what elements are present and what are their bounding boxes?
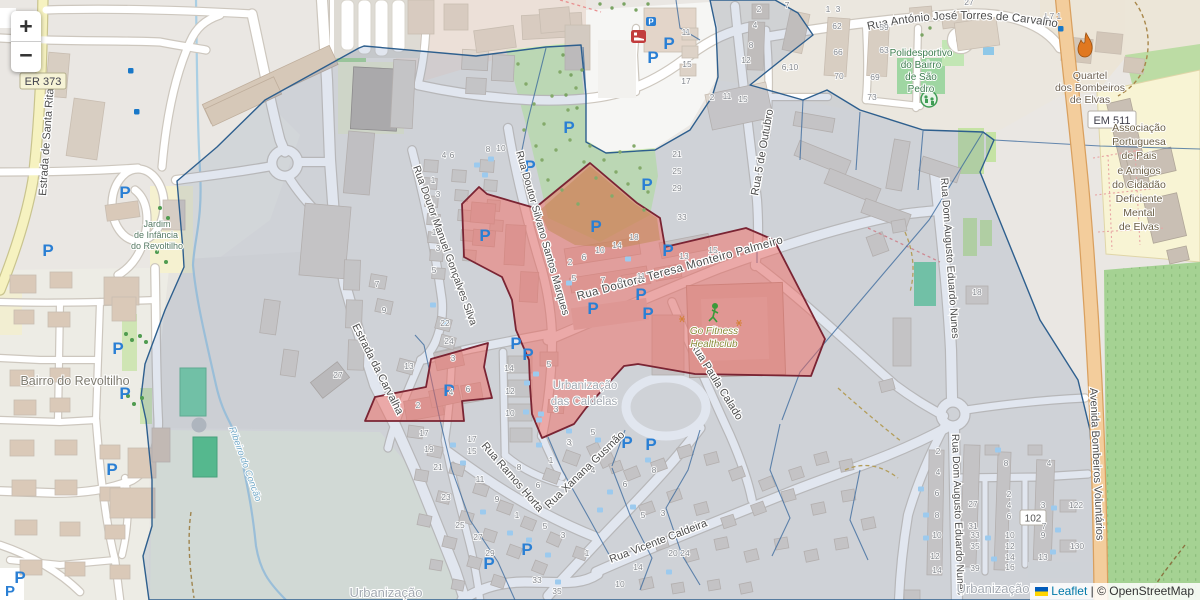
- svg-text:das Caldelas: das Caldelas: [551, 396, 618, 408]
- svg-text:70: 70: [834, 71, 844, 81]
- svg-text:39: 39: [970, 563, 980, 573]
- svg-text:de São: de São: [905, 72, 937, 83]
- svg-text:10: 10: [595, 245, 605, 255]
- svg-text:8: 8: [486, 144, 491, 154]
- svg-text:130: 130: [1070, 541, 1084, 551]
- svg-text:29: 29: [672, 183, 682, 193]
- svg-text:12: 12: [1005, 541, 1015, 551]
- svg-text:do Cidadão: do Cidadão: [1112, 179, 1166, 191]
- svg-text:6: 6: [935, 488, 940, 498]
- svg-text:8: 8: [652, 465, 657, 475]
- svg-text:7: 7: [375, 279, 380, 289]
- svg-text:3: 3: [554, 404, 559, 414]
- svg-text:5: 5: [543, 521, 548, 531]
- svg-text:9: 9: [1041, 530, 1046, 540]
- svg-text:8: 8: [749, 40, 754, 50]
- svg-text:14: 14: [633, 562, 643, 572]
- svg-text:ER 373: ER 373: [25, 76, 62, 88]
- svg-text:21: 21: [433, 462, 443, 472]
- svg-text:122: 122: [1069, 500, 1083, 510]
- svg-text:10: 10: [615, 579, 625, 589]
- svg-text:11: 11: [723, 91, 732, 101]
- svg-text:Healthclub: Healthclub: [690, 339, 738, 350]
- svg-text:3: 3: [567, 437, 572, 447]
- svg-text:P: P: [648, 18, 654, 27]
- svg-text:6: 6: [466, 384, 471, 394]
- svg-text:15: 15: [467, 446, 477, 456]
- svg-text:P: P: [510, 334, 521, 353]
- svg-text:P: P: [590, 217, 601, 236]
- svg-text:15: 15: [682, 59, 692, 69]
- svg-text:10: 10: [496, 143, 506, 153]
- svg-text:3: 3: [436, 243, 441, 253]
- svg-text:8: 8: [935, 510, 940, 520]
- svg-text:63: 63: [879, 45, 889, 55]
- svg-text:18: 18: [972, 287, 982, 297]
- svg-text:P: P: [112, 339, 123, 358]
- svg-text:Urbanização: Urbanização: [553, 380, 618, 392]
- svg-text:8: 8: [517, 462, 522, 472]
- svg-text:27: 27: [473, 532, 483, 542]
- svg-text:15: 15: [738, 94, 748, 104]
- svg-text:24: 24: [680, 548, 690, 558]
- svg-text:P: P: [563, 118, 574, 137]
- svg-text:3: 3: [661, 508, 666, 518]
- svg-text:6: 6: [536, 480, 541, 490]
- svg-text:5: 5: [432, 265, 437, 275]
- svg-text:Urbanização: Urbanização: [957, 581, 1030, 596]
- svg-text:2: 2: [568, 257, 573, 267]
- svg-text:4: 4: [449, 387, 454, 397]
- svg-text:66: 66: [833, 47, 843, 57]
- svg-text:9: 9: [618, 276, 623, 286]
- svg-text:Jardim: Jardim: [143, 219, 170, 229]
- svg-text:62: 62: [832, 21, 842, 31]
- svg-text:Bairro do Revoltilho: Bairro do Revoltilho: [20, 374, 129, 388]
- svg-text:73: 73: [867, 92, 877, 102]
- svg-text:Urbanização: Urbanização: [350, 585, 423, 600]
- svg-text:59: 59: [879, 22, 889, 32]
- svg-text:16: 16: [1005, 562, 1015, 572]
- svg-text:de Pais: de Pais: [1121, 150, 1156, 162]
- svg-text:1: 1: [515, 510, 520, 520]
- svg-text:3: 3: [836, 4, 841, 14]
- svg-text:2: 2: [416, 400, 421, 410]
- svg-text:18: 18: [629, 232, 639, 242]
- svg-text:12: 12: [930, 551, 940, 561]
- svg-text:20: 20: [668, 548, 678, 558]
- svg-text:33: 33: [970, 530, 980, 540]
- svg-text:P: P: [119, 183, 130, 202]
- svg-text:P: P: [14, 568, 25, 587]
- svg-text:35: 35: [552, 586, 562, 596]
- svg-text:17: 17: [681, 76, 691, 86]
- svg-text:P: P: [635, 285, 646, 304]
- svg-text:P: P: [106, 460, 117, 479]
- svg-text:2: 2: [1007, 489, 1012, 499]
- svg-text:4: 4: [442, 150, 447, 160]
- svg-text:P: P: [641, 175, 652, 194]
- svg-text:5: 5: [641, 510, 646, 520]
- svg-text:2: 2: [757, 4, 762, 14]
- svg-text:Pedro: Pedro: [908, 84, 935, 95]
- svg-text:9: 9: [495, 494, 500, 504]
- svg-text:9: 9: [382, 305, 387, 315]
- svg-text:5: 5: [591, 427, 596, 437]
- svg-text:Quartel: Quartel: [1073, 70, 1107, 82]
- svg-text:24: 24: [444, 336, 454, 346]
- svg-text:1: 1: [549, 455, 554, 465]
- svg-text:15: 15: [708, 245, 718, 255]
- svg-text:11: 11: [637, 271, 646, 281]
- svg-text:10: 10: [1005, 530, 1015, 540]
- svg-text:21: 21: [672, 149, 682, 159]
- svg-text:P: P: [663, 34, 674, 53]
- svg-text:5: 5: [547, 359, 552, 369]
- svg-text:3: 3: [451, 353, 456, 363]
- svg-text:17: 17: [419, 428, 429, 438]
- svg-text:35: 35: [970, 541, 980, 551]
- svg-text:11: 11: [682, 27, 691, 37]
- svg-text:do Bairro: do Bairro: [901, 60, 942, 71]
- svg-text:13: 13: [404, 361, 414, 371]
- svg-text:7: 7: [785, 0, 790, 10]
- svg-text:13: 13: [679, 251, 689, 261]
- svg-text:Associação: Associação: [1112, 122, 1166, 134]
- svg-text:e Amigos: e Amigos: [1117, 165, 1160, 177]
- svg-text:33: 33: [532, 575, 542, 585]
- svg-text:5: 5: [572, 273, 577, 283]
- svg-text:25: 25: [455, 520, 465, 530]
- svg-text:de Infância: de Infância: [134, 230, 178, 240]
- svg-text:P: P: [642, 304, 653, 323]
- svg-text:27: 27: [333, 370, 343, 380]
- svg-text:22: 22: [440, 318, 450, 328]
- svg-text:1: 1: [432, 227, 437, 237]
- svg-text:4: 4: [1007, 500, 1012, 510]
- svg-text:4: 4: [1047, 458, 1052, 468]
- svg-text:de Elvas: de Elvas: [1119, 221, 1159, 233]
- svg-text:P: P: [522, 345, 533, 364]
- svg-text:6: 6: [582, 252, 587, 262]
- svg-text:27: 27: [968, 499, 978, 509]
- svg-text:11: 11: [476, 474, 485, 484]
- svg-text:P: P: [645, 435, 656, 454]
- svg-text:8: 8: [1004, 458, 1009, 468]
- svg-text:14: 14: [1005, 552, 1015, 562]
- svg-text:do Revoltilho: do Revoltilho: [131, 241, 183, 251]
- svg-text:14: 14: [612, 240, 622, 250]
- svg-text:102: 102: [1025, 514, 1042, 525]
- svg-text:7: 7: [601, 275, 606, 285]
- svg-text:3: 3: [1041, 500, 1046, 510]
- svg-text:10: 10: [932, 530, 942, 540]
- svg-text:de Elvas: de Elvas: [1070, 94, 1110, 106]
- svg-text:69: 69: [870, 72, 880, 82]
- svg-text:Mental: Mental: [1123, 207, 1155, 219]
- svg-text:P: P: [42, 241, 53, 260]
- svg-text:P: P: [521, 540, 532, 559]
- svg-text:Polidesportivo: Polidesportivo: [890, 48, 953, 59]
- svg-text:19: 19: [424, 444, 434, 454]
- svg-text:4: 4: [936, 467, 941, 477]
- svg-text:17: 17: [467, 434, 477, 444]
- svg-text:14: 14: [504, 363, 514, 373]
- svg-text:25: 25: [672, 166, 682, 176]
- svg-text:29: 29: [485, 548, 495, 558]
- svg-text:6: 6: [623, 479, 628, 489]
- svg-text:P: P: [647, 48, 658, 67]
- svg-text:Go Fitness: Go Fitness: [690, 326, 738, 337]
- svg-text:27: 27: [964, 0, 974, 7]
- svg-text:1: 1: [826, 4, 831, 14]
- svg-text:6: 6: [450, 150, 455, 160]
- svg-text:12: 12: [505, 386, 515, 396]
- svg-text:6: 6: [1007, 511, 1012, 521]
- svg-text:dos Bombeiros: dos Bombeiros: [1055, 82, 1125, 94]
- svg-text:12: 12: [741, 55, 751, 65]
- svg-text:3: 3: [561, 530, 566, 540]
- svg-text:P: P: [662, 241, 673, 260]
- svg-text:1: 1: [431, 175, 436, 185]
- svg-text:10: 10: [505, 408, 515, 418]
- svg-text:P: P: [479, 226, 490, 245]
- svg-text:13: 13: [1038, 552, 1048, 562]
- svg-text:2: 2: [710, 92, 715, 102]
- svg-text:14: 14: [932, 565, 942, 575]
- svg-text:P: P: [5, 583, 15, 600]
- svg-text:P: P: [587, 299, 598, 318]
- svg-text:33: 33: [677, 212, 687, 222]
- svg-text:Deficiente: Deficiente: [1116, 193, 1163, 205]
- svg-text:1: 1: [585, 548, 590, 558]
- svg-text:4: 4: [753, 20, 758, 30]
- svg-text:23: 23: [441, 492, 451, 502]
- svg-text:Portuguesa: Portuguesa: [1112, 136, 1166, 148]
- svg-text:6,10: 6,10: [782, 62, 799, 72]
- svg-text:4: 4: [591, 465, 596, 475]
- svg-text:3: 3: [436, 189, 441, 199]
- svg-text:2: 2: [936, 446, 941, 456]
- svg-text:L7 1: L7 1: [1045, 11, 1062, 21]
